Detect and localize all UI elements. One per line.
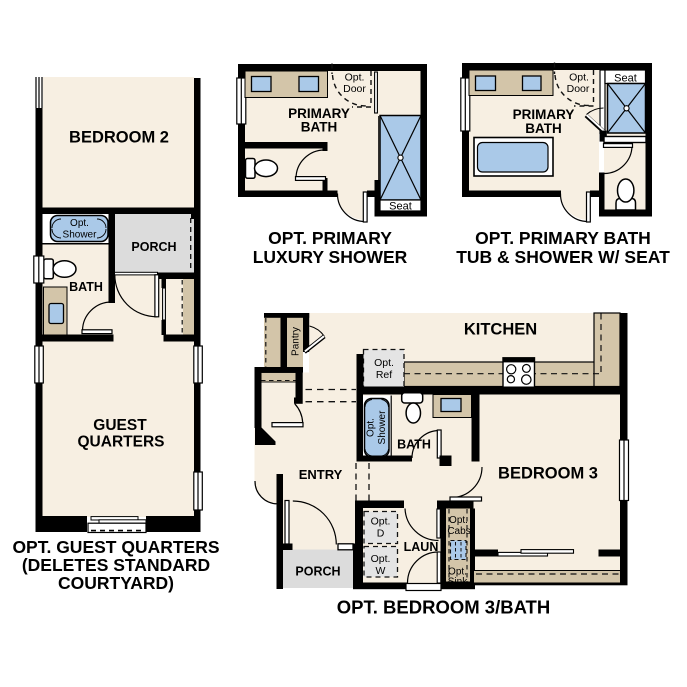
svg-text:Opt.: Opt. bbox=[371, 553, 391, 565]
svg-text:BATH: BATH bbox=[301, 120, 338, 135]
svg-text:Door: Door bbox=[567, 83, 590, 95]
svg-text:TUB & SHOWER W/ SEAT: TUB & SHOWER W/ SEAT bbox=[456, 247, 670, 267]
svg-text:Opt.: Opt. bbox=[345, 72, 365, 84]
svg-text:KITCHEN: KITCHEN bbox=[464, 321, 537, 339]
svg-text:PRIMARY: PRIMARY bbox=[513, 107, 575, 122]
svg-text:GUEST: GUEST bbox=[93, 417, 147, 434]
svg-text:OPT. PRIMARY: OPT. PRIMARY bbox=[268, 228, 392, 248]
svg-text:Door: Door bbox=[343, 83, 366, 95]
svg-text:BEDROOM 2: BEDROOM 2 bbox=[69, 129, 169, 147]
svg-text:BATH: BATH bbox=[69, 280, 103, 294]
svg-text:BATH: BATH bbox=[397, 438, 431, 452]
svg-text:Opt.: Opt. bbox=[371, 516, 391, 528]
svg-text:OPT. GUEST QUARTERS: OPT. GUEST QUARTERS bbox=[12, 537, 219, 557]
svg-text:COURTYARD): COURTYARD) bbox=[58, 573, 174, 593]
svg-text:LUXURY SHOWER: LUXURY SHOWER bbox=[253, 247, 408, 267]
svg-text:Opt.: Opt. bbox=[449, 515, 468, 526]
svg-text:Opt.: Opt. bbox=[70, 218, 89, 229]
svg-text:BATH: BATH bbox=[525, 121, 562, 136]
svg-text:Opt.: Opt. bbox=[569, 72, 589, 84]
svg-text:Shower: Shower bbox=[377, 410, 388, 445]
svg-text:Seat: Seat bbox=[389, 201, 412, 213]
svg-text:Ref: Ref bbox=[376, 369, 392, 381]
svg-text:QUARTERS: QUARTERS bbox=[78, 434, 165, 451]
svg-text:(DELETES STANDARD: (DELETES STANDARD bbox=[22, 555, 210, 575]
svg-text:Pantry: Pantry bbox=[291, 327, 302, 356]
svg-text:Seat: Seat bbox=[614, 73, 637, 85]
svg-text:OPT. PRIMARY BATH: OPT. PRIMARY BATH bbox=[475, 228, 651, 248]
svg-text:W: W bbox=[376, 565, 386, 577]
svg-text:D: D bbox=[377, 528, 385, 540]
svg-text:PORCH: PORCH bbox=[295, 565, 340, 579]
svg-text:Shower: Shower bbox=[63, 230, 98, 241]
svg-text:Opt.: Opt. bbox=[366, 418, 377, 437]
svg-text:Cabs: Cabs bbox=[447, 526, 470, 537]
svg-text:ENTRY: ENTRY bbox=[299, 467, 343, 482]
svg-text:PORCH: PORCH bbox=[131, 240, 176, 254]
svg-text:Sink: Sink bbox=[448, 577, 468, 588]
svg-text:OPT. BEDROOM 3/BATH: OPT. BEDROOM 3/BATH bbox=[337, 597, 550, 618]
svg-text:Opt.: Opt. bbox=[374, 357, 394, 369]
svg-text:BEDROOM 3: BEDROOM 3 bbox=[498, 465, 598, 483]
